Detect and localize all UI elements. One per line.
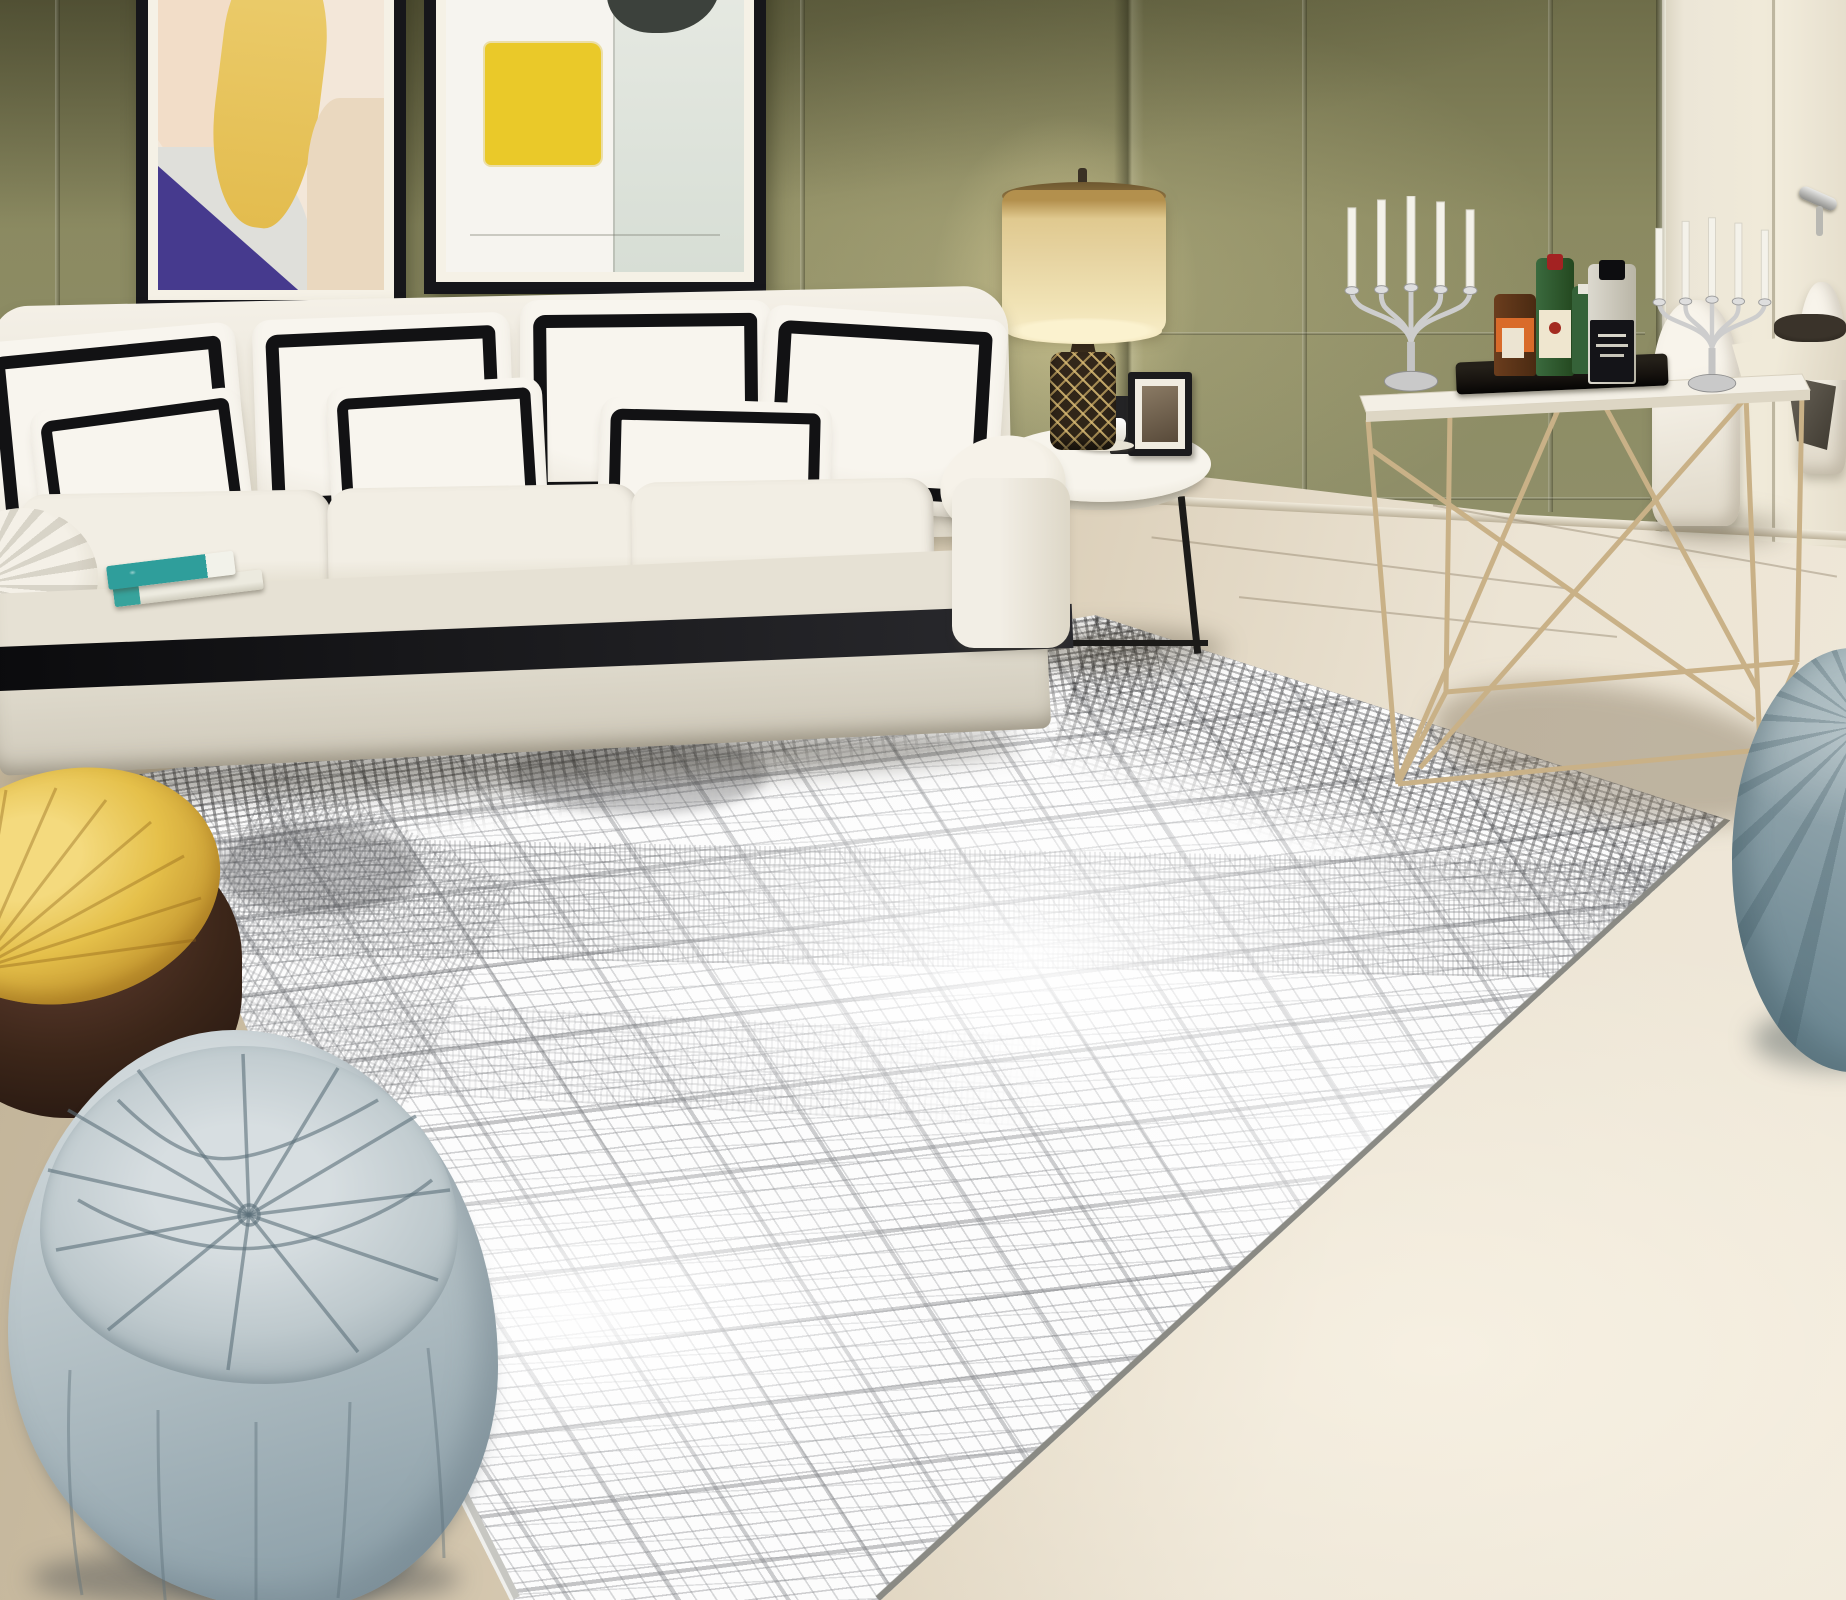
lamp-drum-shade xyxy=(1002,190,1166,334)
black-cap xyxy=(1599,260,1625,280)
jack-daniels-bottle xyxy=(1588,264,1636,384)
label-text-line xyxy=(1598,334,1626,337)
painting-mat xyxy=(436,0,754,282)
sofa-right-arm xyxy=(952,478,1070,648)
label-emblem xyxy=(1549,322,1561,334)
amber-bottle-tag xyxy=(1502,328,1524,358)
green-bottle-label xyxy=(1539,310,1571,358)
candles xyxy=(1348,196,1474,291)
candelabra-base xyxy=(1384,371,1437,391)
label-text-line xyxy=(1596,344,1628,347)
door-handle-plate xyxy=(1816,206,1823,236)
living-room-scene xyxy=(0,0,1846,1600)
candelabra-left xyxy=(1336,196,1486,398)
photo xyxy=(1142,386,1178,442)
silver-arms xyxy=(1352,289,1470,342)
lamp-shade-bottom-glow xyxy=(1006,318,1162,344)
candelabra-base xyxy=(1688,374,1736,392)
console-gold-legs xyxy=(1368,392,1802,784)
art-sage-column xyxy=(613,0,744,272)
art-yellow-block xyxy=(485,43,601,165)
label-text-line xyxy=(1600,354,1624,357)
sofa-black-stripe xyxy=(0,604,1073,691)
console-table-frame xyxy=(1350,360,1820,800)
art-beige-shape xyxy=(307,98,384,290)
candelabra-right xyxy=(1646,212,1778,404)
bottle-red-cap xyxy=(1547,254,1563,270)
web-seams xyxy=(48,1054,450,1370)
silver-arms xyxy=(1659,301,1765,349)
painting-right-art xyxy=(446,0,744,272)
abstract-painting-left xyxy=(136,0,406,312)
body-seams xyxy=(69,1348,445,1600)
painting-mat xyxy=(148,0,394,300)
art-baseline xyxy=(470,234,720,236)
painting-left-art xyxy=(158,0,384,290)
candles xyxy=(1656,218,1769,302)
dining-centerpiece xyxy=(1774,314,1846,342)
amber-bottle xyxy=(1494,294,1536,376)
photo-frame xyxy=(1128,372,1192,456)
blue-quilted-pouf xyxy=(8,1030,498,1600)
black-label xyxy=(1590,320,1634,382)
wall-panel-line xyxy=(1302,0,1307,512)
yellow-pouf-pleats xyxy=(0,770,222,1002)
blue-pouf-web-seams xyxy=(8,1030,498,1600)
abstract-painting-right xyxy=(424,0,766,294)
pleat-lines xyxy=(0,788,201,970)
whisky-bottle-green xyxy=(1536,258,1574,376)
lamp-lattice-base xyxy=(1050,352,1116,450)
